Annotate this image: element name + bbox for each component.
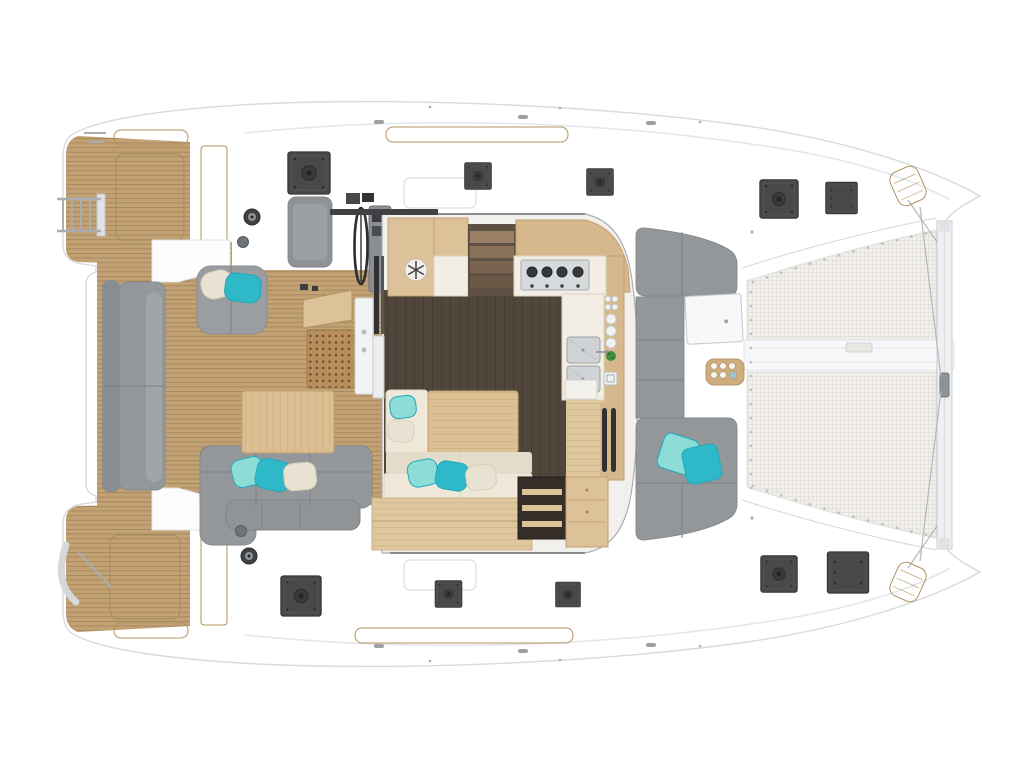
galley-counter [434, 256, 468, 296]
helm-instrument [362, 193, 374, 202]
white-pillow [465, 463, 498, 491]
teal-pillow [223, 272, 262, 304]
ladder-mount [97, 194, 105, 236]
companionway-steps-port [468, 224, 516, 296]
cockpit-table [242, 391, 334, 453]
foredeck-locker [685, 294, 743, 345]
galley-wood-floor [566, 400, 604, 478]
trampoline-net-top [747, 230, 936, 340]
beam-windlass [846, 343, 872, 352]
deck-hatch [465, 163, 492, 190]
door-panel [373, 336, 384, 398]
white-pillow [387, 419, 415, 444]
deck-hatch [288, 152, 330, 194]
saloon-table [428, 391, 518, 453]
sliding-door-header [330, 209, 438, 215]
fridge-cabinet [388, 218, 434, 296]
trampoline [744, 163, 954, 604]
deck-hatch [281, 576, 321, 616]
coachroof-grabrail-bottom [355, 628, 573, 643]
lounge-top-arm [636, 228, 737, 296]
white-pillow [283, 461, 318, 491]
deck-hatch [435, 581, 462, 608]
teal-pillow [681, 443, 724, 486]
catamaran-floor-plan [0, 0, 1024, 768]
trampoline-net-bottom [747, 372, 936, 538]
vent-grilles [600, 404, 622, 476]
outlet-switch [604, 372, 617, 385]
corner-sunpad [197, 266, 267, 334]
deck-hatch [826, 182, 858, 214]
aft-cockpit [97, 193, 391, 564]
saloon [330, 209, 638, 553]
deck-hatch [761, 556, 797, 592]
deck-hatch [827, 552, 868, 593]
crossbeam-endcap [939, 222, 950, 232]
cooktop [521, 260, 589, 290]
shower-grate [307, 330, 355, 388]
helm-seat-cushion [293, 204, 327, 260]
teal-pillow [389, 394, 418, 419]
galley-cabinet [434, 218, 468, 256]
cupholder-tray [706, 359, 744, 385]
floor-plan-image [0, 0, 1024, 768]
deck-hatch [587, 169, 614, 196]
sliding-door [373, 256, 384, 398]
winches-top [238, 209, 261, 248]
teal-pillow [434, 459, 470, 492]
helm-instrument [346, 193, 360, 204]
snowflake-icon [405, 259, 427, 281]
companionway-steps-starboard [518, 477, 566, 539]
saloon-wood-platform [372, 498, 532, 550]
deck-hatch [760, 180, 798, 218]
lounge-spine [636, 297, 684, 418]
crossbeam-endcap [939, 538, 950, 548]
cockpit-sofa [200, 446, 372, 545]
aft-galley-cabinet [566, 477, 608, 547]
aft-bench [102, 280, 165, 492]
swim-ladder [57, 194, 105, 236]
foredeck-lounge [636, 228, 744, 540]
deck-hatch [556, 582, 581, 607]
plant [606, 351, 616, 361]
crossbeam [937, 221, 952, 549]
galley-appliance [565, 380, 597, 399]
coachroof-grabrail-top [386, 127, 568, 142]
